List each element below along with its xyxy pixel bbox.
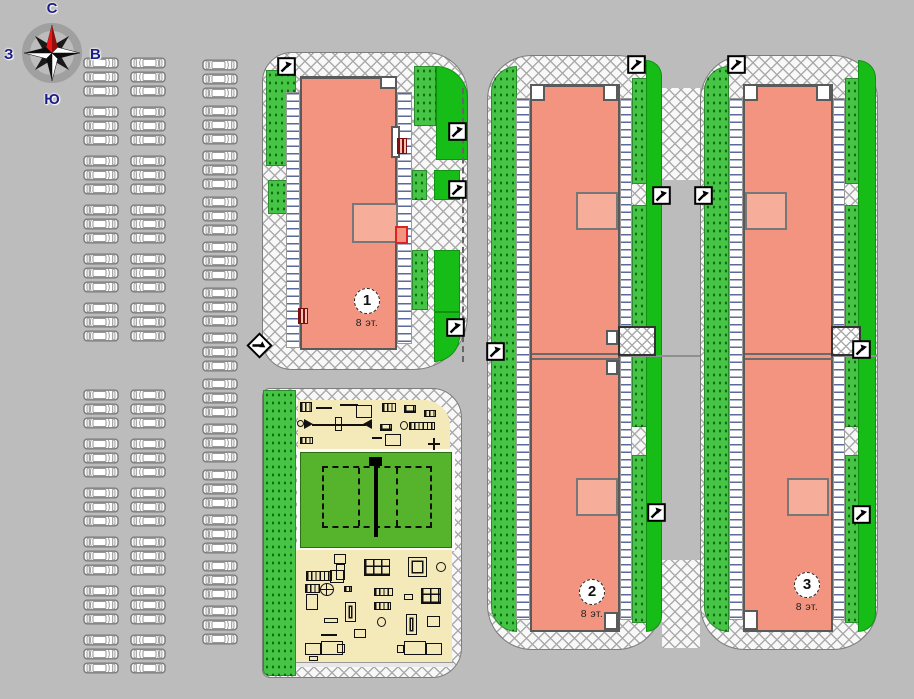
streetlight-marker-icon [852,340,871,359]
streetlight-marker-icon [652,186,671,205]
building-2-label: 2 8 эт. [572,579,612,620]
compass-east-label: В [90,46,101,63]
streetlight-marker-icon [647,503,666,522]
building-3-label: 3 8 эт. [787,572,827,613]
diamond-marker-icon [246,332,273,359]
compass-north-label: С [2,0,102,17]
compass-rose: С Ю З В [2,2,102,106]
marker-layer [0,0,914,699]
streetlight-marker-icon [627,55,646,74]
site-plan-canvas: С Ю З В 1 8 эт. 2 8 эт. [0,0,914,699]
building-2-floors: 8 эт. [572,608,612,620]
streetlight-marker-icon [486,342,505,361]
building-3-floors: 8 эт. [787,601,827,613]
building-1-label: 1 8 эт. [347,288,387,329]
building-1-number: 1 [354,288,380,314]
streetlight-marker-icon [727,55,746,74]
building-1-floors: 8 эт. [347,317,387,329]
building-2-number: 2 [579,579,605,605]
streetlight-marker-icon [446,318,465,337]
compass-star-icon [15,16,89,90]
streetlight-marker-icon [448,180,467,199]
compass-west-label: З [4,46,13,63]
streetlight-marker-icon [694,186,713,205]
streetlight-marker-icon [277,57,296,76]
streetlight-marker-icon [852,505,871,524]
streetlight-marker-icon [448,122,467,141]
building-3-number: 3 [794,572,820,598]
compass-south-label: Ю [2,91,102,108]
